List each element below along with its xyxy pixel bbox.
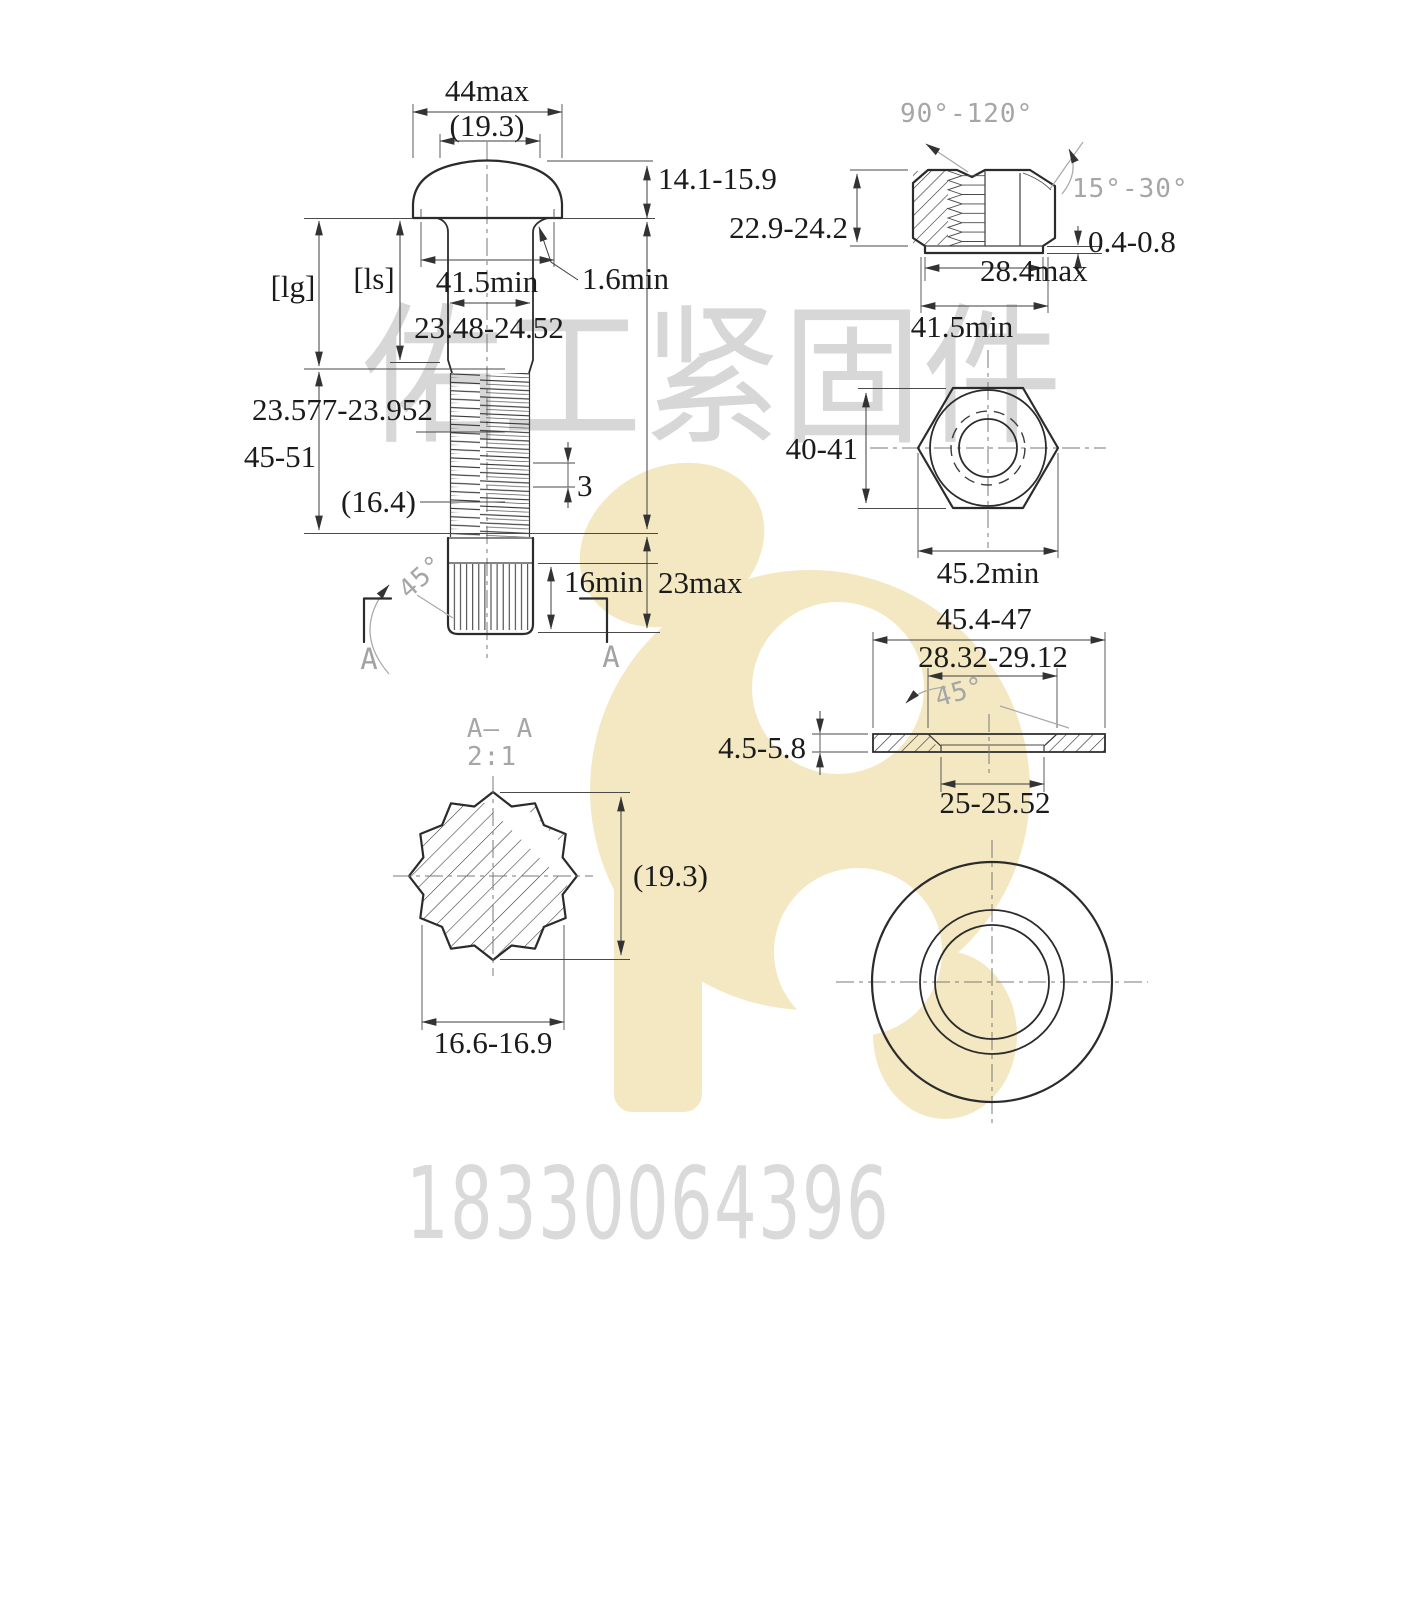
- dim-pitch: 3: [577, 468, 593, 503]
- dim-thread-dia: 23.577-23.952: [252, 392, 433, 427]
- dim-spline-dia: (16.4): [341, 484, 416, 519]
- engineering-drawing-page: 佑工紧固件 18330064396: [0, 0, 1416, 1600]
- dim-washer-od: 45.4-47: [936, 601, 1032, 636]
- dim-washer-thickness: 4.5-5.8: [718, 730, 806, 765]
- dim-washer-id: 25-25.52: [939, 785, 1050, 820]
- dim-fillet: 1.6min: [582, 261, 669, 296]
- nut-thread-profile: [948, 171, 962, 246]
- dim-nut-height: 22.9-24.2: [729, 210, 848, 245]
- dim-spline-length: 16min: [564, 564, 644, 599]
- dim-shank-label: [ls]: [353, 261, 394, 296]
- dim-shank-dia: 23.48-24.52: [414, 310, 564, 345]
- dim-washer-chamfer-dia: 28.32-29.12: [918, 639, 1068, 674]
- dim-nut-chamfer-angle: 15°-30°: [1072, 174, 1189, 204]
- dim-washer-face-dia: 28.4max: [980, 253, 1088, 288]
- bolt-spline-point: [452, 564, 531, 630]
- dim-thread-length: 45-51: [244, 439, 316, 474]
- dim-spline-tip-dia: (19.3): [633, 858, 708, 893]
- section-cut-mark-left: [364, 599, 391, 643]
- drawing-svg: 佑工紧固件 18330064396: [0, 0, 1416, 1600]
- nut-hatch: [913, 171, 948, 245]
- dim-head-width: 44max: [445, 73, 530, 108]
- dim-nut-bearing-dia: 41.5min: [911, 309, 1014, 344]
- dim-grip-label: [lg]: [271, 269, 316, 304]
- dim-chamfer-angle: 45°: [393, 549, 450, 605]
- dim-washer-face-height: 0.4-0.8: [1088, 224, 1176, 259]
- dim-across-corners: 45.2min: [937, 555, 1040, 590]
- dim-point-length: 23max: [658, 565, 743, 600]
- dim-head-height: 14.1-15.9: [658, 161, 777, 196]
- logo-watermark: [551, 431, 1030, 1119]
- dim-head-top-dia: (19.3): [450, 108, 525, 143]
- dim-bearing-dia: 41.5min: [436, 264, 539, 299]
- section-scale: 2:1: [467, 742, 517, 772]
- dim-across-flats: 40-41: [786, 431, 858, 466]
- dim-spline-across-flats: 16.6-16.9: [434, 1025, 553, 1060]
- section-letter-left: A: [360, 642, 377, 676]
- section-title: A— A: [467, 714, 534, 744]
- nut-thread-lines: [962, 176, 985, 242]
- section-letter-right: A: [602, 640, 619, 674]
- bolt-thread: [450, 373, 530, 537]
- dim-countersink-angle: 90°-120°: [900, 99, 1033, 129]
- phone-watermark-text: 18330064396: [406, 1145, 890, 1262]
